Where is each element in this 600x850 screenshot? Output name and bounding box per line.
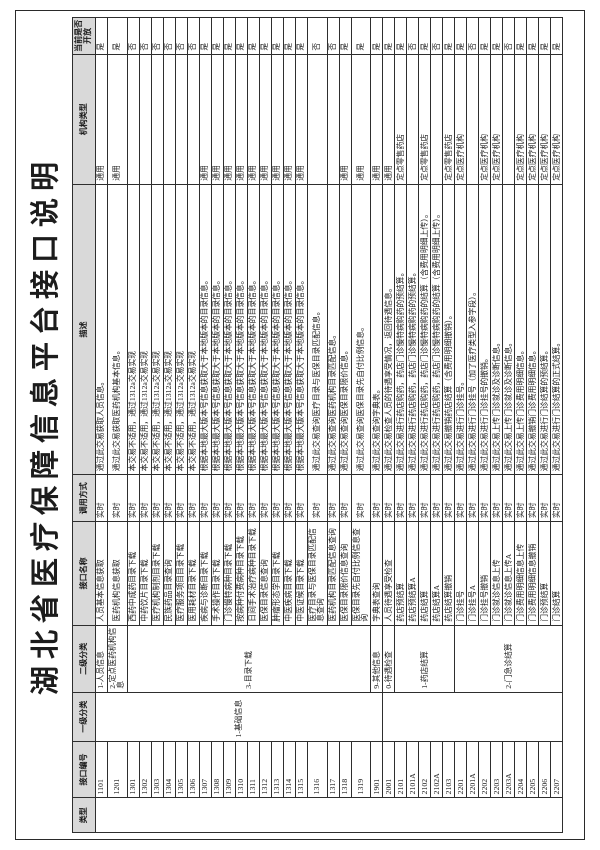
call-mode-cell: 实时	[443, 475, 455, 522]
interface-id-cell: 1316	[307, 741, 327, 798]
header-type: 类型	[73, 798, 96, 833]
level2-category-cell: 1-药店结算	[395, 625, 455, 692]
open-status-cell: 否	[175, 18, 187, 55]
interface-id-cell: 1303	[151, 741, 163, 798]
org-type-cell	[139, 54, 151, 184]
description-cell: 通过此交易进行药店购药，药店门诊慢特病购药的预结算。	[407, 184, 419, 475]
description-cell: 通过此交易进行门诊结算的正式结算。	[551, 184, 563, 475]
interface-name-cell: 中药饮片目录下载	[139, 522, 151, 626]
open-status-cell: 是	[211, 18, 223, 55]
call-mode-cell: 实时	[527, 475, 539, 522]
level2-category-cell: 2-门急诊结算	[455, 625, 563, 692]
interface-id-cell: 1305	[175, 741, 187, 798]
interface-id-cell: 1307	[199, 741, 211, 798]
org-type-cell: 通用	[247, 54, 259, 184]
description-cell: 根据本地最大版本号信息获取大于本地版本的目录信息。	[199, 184, 211, 475]
description-cell: 通过此交易查询医疗目录与医保目录匹配信息。	[307, 184, 327, 475]
interface-name-cell: 门诊预结算	[539, 522, 551, 626]
interface-id-cell: 1201	[108, 741, 128, 798]
call-mode-cell: 实时	[211, 475, 223, 522]
open-status-cell: 是	[259, 18, 271, 55]
org-type-cell: 通用	[371, 54, 383, 184]
org-type-cell	[175, 54, 187, 184]
description-cell: 根据本地最大版本号信息获取大于本地版本的目录信息。	[235, 184, 247, 475]
org-type-cell	[127, 54, 139, 184]
open-status-cell: 否	[307, 18, 327, 55]
description-cell: 本交易不适用，通过1312a交易实现	[175, 184, 187, 475]
open-status-cell: 否	[327, 18, 339, 55]
open-status-cell: 否	[151, 18, 163, 55]
interface-id-cell: 2103	[443, 741, 455, 798]
interface-name-cell: 医保目录信息查询	[259, 522, 271, 626]
open-status-cell: 是	[395, 18, 407, 55]
description-cell: 本交易不适用，通过1312a交易实现	[163, 184, 175, 475]
description-cell: 通过此交易撤销门诊费用明细信息。	[527, 184, 539, 475]
org-type-cell	[187, 54, 199, 184]
interface-id-cell: 1312	[259, 741, 271, 798]
open-status-cell: 是	[383, 18, 395, 55]
open-status-cell: 是	[443, 18, 455, 55]
interface-id-cell: 2201A	[467, 741, 479, 798]
interface-id-cell: 1319	[351, 741, 371, 798]
type-cell	[96, 798, 563, 833]
org-type-cell: 定点医疗机构	[551, 54, 563, 184]
interface-id-cell: 1901	[371, 741, 383, 798]
open-status-cell: 是	[527, 18, 539, 55]
open-status-cell: 是	[515, 18, 527, 55]
table-body: 11011-基础信息1-人员信息人员基本信息获取实时通过此交易获取人员信息。通用…	[96, 18, 563, 833]
open-status-cell: 是	[235, 18, 247, 55]
org-type-cell: 通用	[295, 54, 307, 184]
interface-name-cell: 字典表查询	[371, 522, 383, 626]
interface-id-cell: 2203A	[503, 741, 515, 798]
call-mode-cell: 实时	[467, 475, 479, 522]
org-type-cell: 通用	[96, 54, 108, 184]
interface-name-cell: 疾病与诊断目录下载	[199, 522, 211, 626]
org-type-cell: 通用	[271, 54, 283, 184]
open-status-cell: 否	[187, 18, 199, 55]
interface-name-cell: 药店结算撤销	[443, 522, 455, 626]
interface-name-cell: 人员待遇享受检查	[383, 522, 395, 626]
interface-id-cell: 1306	[187, 741, 199, 798]
interface-id-cell: 2102A	[431, 741, 443, 798]
table-row: 11011-基础信息1-人员信息人员基本信息获取实时通过此交易获取人员信息。通用…	[96, 18, 108, 833]
description-cell: 通过此交易进行门诊挂号（加了医疗类型入参字段）。	[467, 184, 479, 475]
open-status-cell: 否	[407, 18, 419, 55]
open-status-cell: 是	[551, 18, 563, 55]
description-cell: 根据本地最大版本号信息获取大于本地版本的目录信息。	[259, 184, 271, 475]
interface-name-cell: 民族药品目录查询	[163, 522, 175, 626]
org-type-cell: 定点医疗机构	[455, 54, 467, 184]
call-mode-cell: 实时	[175, 475, 187, 522]
call-mode-cell: 实时	[247, 475, 259, 522]
interface-id-cell: 1301	[127, 741, 139, 798]
description-cell: 通过此交易获取医药机构基本信息。	[108, 184, 128, 475]
call-mode-cell: 实时	[407, 475, 419, 522]
org-type-cell	[407, 54, 419, 184]
org-type-cell: 定点零售药店	[443, 54, 455, 184]
org-type-cell	[503, 54, 515, 184]
call-mode-cell: 实时	[96, 475, 108, 522]
org-type-cell: 通用	[211, 54, 223, 184]
interface-name-cell: 按病种付费病种目录下载	[235, 522, 247, 626]
open-status-cell: 是	[108, 18, 128, 55]
interface-name-cell: 医保目录先自付比例信息查询	[351, 522, 371, 626]
call-mode-cell: 实时	[351, 475, 371, 522]
description-cell: 根据本地最大版本号信息获取大于本地版本的目录信息。	[295, 184, 307, 475]
interface-name-cell: 药店预结算	[395, 522, 407, 626]
interface-id-cell: 2206	[539, 741, 551, 798]
org-type-cell	[327, 54, 339, 184]
level1-category-cell: 1-基础信息	[96, 692, 383, 741]
level2-category-cell: 3-目录下载	[127, 625, 371, 692]
call-mode-cell: 实时	[515, 475, 527, 522]
interface-name-cell: 手术操作目录下载	[211, 522, 223, 626]
description-cell: 通过此交易进行药店购药，药店门诊慢特病购药的结算（含费用明细上传）。	[431, 184, 443, 475]
org-type-cell	[151, 54, 163, 184]
org-type-cell: 通用	[383, 54, 395, 184]
description-cell: 通过此交易进行门诊结算的预结算。	[539, 184, 551, 475]
org-type-cell: 通用	[351, 54, 371, 184]
interface-id-cell: 1314	[283, 741, 295, 798]
description-cell: 通过此交易进行门诊挂号的撤销。	[479, 184, 491, 475]
call-mode-cell: 实时	[539, 475, 551, 522]
description-cell: 根据本地最大版本号信息获取大于本地版本的目录信息。	[211, 184, 223, 475]
interface-id-cell: 2205	[527, 741, 539, 798]
call-mode-cell: 实时	[235, 475, 247, 522]
open-status-cell: 是	[539, 18, 551, 55]
call-mode-cell: 实时	[127, 475, 139, 522]
interface-name-cell: 医药机构信息获取	[108, 522, 128, 626]
rotated-document-sheet: 湖北省医疗保障信息平台接口说明 类型 接口编号 一级分类 二级分类 接口名称 调…	[15, 10, 585, 840]
interface-name-cell: 门诊慢特病种目录下载	[223, 522, 235, 626]
org-type-cell: 定点医疗机构	[515, 54, 527, 184]
call-mode-cell: 实时	[271, 475, 283, 522]
interface-id-cell: 1311	[247, 741, 259, 798]
description-cell: 通过此交易查询字典表。	[371, 184, 383, 475]
header-call-mode: 调用方式	[73, 475, 96, 522]
call-mode-cell: 实时	[371, 475, 383, 522]
call-mode-cell: 实时	[199, 475, 211, 522]
org-type-cell: 定点零售药店	[395, 54, 407, 184]
table-header-row: 类型 接口编号 一级分类 二级分类 接口名称 调用方式 描述 机构类型 当前是否…	[73, 18, 96, 833]
header-description: 描述	[73, 184, 96, 475]
interface-name-cell: 医药机构目录匹配信息查询	[327, 522, 339, 626]
description-cell: 根据本地最大版本号信息获取大于本地版本的目录信息。	[271, 184, 283, 475]
interface-name-cell: 门诊就诊信息上传	[491, 522, 503, 626]
open-status-cell: 是	[479, 18, 491, 55]
description-cell: 通过此交易检查人员的待遇享受情况，返回待遇信息。	[383, 184, 395, 475]
open-status-cell: 否	[139, 18, 151, 55]
page-title: 湖北省医疗保障信息平台接口说明	[24, 17, 70, 833]
interface-name-cell: 药店结算	[419, 522, 431, 626]
call-mode-cell: 实时	[223, 475, 235, 522]
interface-id-cell: 1304	[163, 741, 175, 798]
interface-id-cell: 1317	[327, 741, 339, 798]
description-cell: 通过此交易上传门诊就诊及诊断信息。	[503, 184, 515, 475]
org-type-cell	[467, 54, 479, 184]
org-type-cell: 定点零售药店	[419, 54, 431, 184]
call-mode-cell: 实时	[139, 475, 151, 522]
interface-name-cell: 门诊结算	[551, 522, 563, 626]
interface-id-cell: 2102	[419, 741, 431, 798]
call-mode-cell: 实时	[327, 475, 339, 522]
org-type-cell: 定点医疗机构	[491, 54, 503, 184]
description-cell: 通过此交易进行门诊挂号。	[455, 184, 467, 475]
interface-name-cell: 医疗机构制剂目录下载	[151, 522, 163, 626]
description-cell: 通过此交易获取人员信息。	[96, 184, 108, 475]
interface-name-cell: 门诊挂号撤销	[479, 522, 491, 626]
open-status-cell: 是	[283, 18, 295, 55]
open-status-cell: 是	[295, 18, 307, 55]
description-cell: 通过此交易进行药店购药，药店门诊慢特病购药的结算（含费用明细上传）。	[419, 184, 431, 475]
interface-name-cell: 门诊费用明细信息撤销	[527, 522, 539, 626]
interface-id-cell: 1310	[235, 741, 247, 798]
interface-id-cell: 1315	[295, 741, 307, 798]
interface-id-cell: 1302	[139, 741, 151, 798]
description-cell: 通过此交易查询医药机构目录匹配信息。	[327, 184, 339, 475]
interface-id-cell: 2202	[479, 741, 491, 798]
interface-name-cell: 药店预结算A	[407, 522, 419, 626]
description-cell: 通过此交易上传门诊费用明细信息。	[515, 184, 527, 475]
call-mode-cell: 实时	[431, 475, 443, 522]
call-mode-cell: 实时	[383, 475, 395, 522]
org-type-cell: 通用	[235, 54, 247, 184]
table-row: 20010-待遇检查人员待遇享受检查实时通过此交易检查人员的待遇享受情况，返回待…	[383, 18, 395, 833]
interface-id-cell: 2101A	[407, 741, 419, 798]
interface-id-cell: 2207	[551, 741, 563, 798]
header-org-type: 机构类型	[73, 54, 96, 184]
open-status-cell: 是	[419, 18, 431, 55]
interface-name-cell: 医疗目录与医保目录匹配信息查询	[307, 522, 327, 626]
description-cell: 本交易不适用，通过1312a交易实现	[151, 184, 163, 475]
call-mode-cell: 实时	[491, 475, 503, 522]
interface-name-cell: 门诊费用明细信息上传	[515, 522, 527, 626]
interface-id-cell: 2204	[515, 741, 527, 798]
org-type-cell: 通用	[108, 54, 128, 184]
level2-category-cell: 0-待遇检查	[383, 625, 395, 692]
call-mode-cell: 实时	[108, 475, 128, 522]
interface-id-cell: 1101	[96, 741, 108, 798]
interface-name-cell: 人员基本信息获取	[96, 522, 108, 626]
header-level1-category: 一级分类	[73, 692, 96, 741]
org-type-cell	[163, 54, 175, 184]
open-status-cell: 是	[491, 18, 503, 55]
description-cell: 本交易不适用，通过1312a交易实现	[187, 184, 199, 475]
call-mode-cell: 实时	[419, 475, 431, 522]
interface-id-cell: 2203	[491, 741, 503, 798]
open-status-cell: 否	[127, 18, 139, 55]
open-status-cell: 是	[247, 18, 259, 55]
call-mode-cell: 实时	[259, 475, 271, 522]
interface-table: 类型 接口编号 一级分类 二级分类 接口名称 调用方式 描述 机构类型 当前是否…	[72, 17, 563, 833]
open-status-cell: 否	[467, 18, 479, 55]
org-type-cell: 定点医疗机构	[527, 54, 539, 184]
call-mode-cell: 实时	[395, 475, 407, 522]
open-status-cell: 是	[271, 18, 283, 55]
org-type-cell	[431, 54, 443, 184]
interface-name-cell: 门诊就诊信息上传A	[503, 522, 515, 626]
interface-id-cell: 1308	[211, 741, 223, 798]
interface-name-cell: 医保目录限价信息查询	[339, 522, 351, 626]
call-mode-cell: 实时	[283, 475, 295, 522]
level1-category-cell	[383, 692, 563, 741]
interface-name-cell: 医用耗材目录下载	[187, 522, 199, 626]
scanned-page: { "title": "湖北省医疗保障信息平台接口说明", "table": {…	[0, 0, 600, 850]
open-status-cell: 是	[351, 18, 371, 55]
interface-name-cell: 门诊挂号	[455, 522, 467, 626]
description-cell: 通过此交易上传门诊就诊及诊断信息。	[491, 184, 503, 475]
level2-category-cell: 2-定点医药机构信息	[108, 625, 128, 692]
call-mode-cell: 实时	[455, 475, 467, 522]
open-status-cell: 是	[199, 18, 211, 55]
interface-name-cell: 门诊挂号A	[467, 522, 479, 626]
description-cell: 本交易不适用，通过1312a交易实现	[139, 184, 151, 475]
call-mode-cell: 实时	[551, 475, 563, 522]
org-type-cell: 定点医疗机构	[479, 54, 491, 184]
open-status-cell: 是	[455, 18, 467, 55]
call-mode-cell: 实时	[151, 475, 163, 522]
description-cell: 本交易不适用，通过1312a交易实现	[127, 184, 139, 475]
open-status-cell: 否	[431, 18, 443, 55]
open-status-cell: 否	[503, 18, 515, 55]
interface-name-cell: 医疗服务项目目录下载	[175, 522, 187, 626]
open-status-cell: 否	[163, 18, 175, 55]
description-cell: 通过此交易进行药店购药，药店门诊慢特病购药的预结算。	[395, 184, 407, 475]
description-cell: 根据本地最大版本号信息获取大于本地版本的目录信息。	[247, 184, 259, 475]
level2-category-cell: 9-其他信息	[371, 625, 383, 692]
org-type-cell: 通用	[223, 54, 235, 184]
call-mode-cell: 实时	[479, 475, 491, 522]
open-status-cell: 是	[339, 18, 351, 55]
header-interface-name: 接口名称	[73, 522, 96, 626]
header-level2-category: 二级分类	[73, 625, 96, 692]
call-mode-cell: 实时	[187, 475, 199, 522]
org-type-cell: 通用	[199, 54, 211, 184]
interface-name-cell: 肿瘤形态学目录下载	[271, 522, 283, 626]
description-cell: 根据本地最大版本号信息获取大于本地版本的目录信息。	[223, 184, 235, 475]
header-open-status: 当前是否开放	[73, 18, 96, 55]
interface-id-cell: 1313	[271, 741, 283, 798]
call-mode-cell: 实时	[295, 475, 307, 522]
interface-name-cell: 西药中成药目录下载	[127, 522, 139, 626]
call-mode-cell: 实时	[163, 475, 175, 522]
call-mode-cell: 实时	[307, 475, 327, 522]
interface-name-cell: 药店结算A	[431, 522, 443, 626]
open-status-cell: 是	[223, 18, 235, 55]
open-status-cell: 是	[96, 18, 108, 55]
org-type-cell: 通用	[259, 54, 271, 184]
interface-name-cell: 日间手术治疗病种目录下载	[247, 522, 259, 626]
interface-id-cell: 2001	[383, 741, 395, 798]
interface-name-cell: 中医疾病目录下载	[283, 522, 295, 626]
description-cell: 通过此交易查询医保目录先自付比例信息。	[351, 184, 371, 475]
org-type-cell: 通用	[283, 54, 295, 184]
level2-category-cell: 1-人员信息	[96, 625, 108, 692]
interface-id-cell: 1309	[223, 741, 235, 798]
interface-id-cell: 1318	[339, 741, 351, 798]
org-type-cell: 定点医疗机构	[539, 54, 551, 184]
call-mode-cell: 实时	[339, 475, 351, 522]
description-cell: 通过此交易查询医保目录限价信息。	[339, 184, 351, 475]
org-type-cell: 通用	[339, 54, 351, 184]
interface-id-cell: 2101	[395, 741, 407, 798]
header-interface-id: 接口编号	[73, 741, 96, 798]
open-status-cell: 是	[371, 18, 383, 55]
interface-id-cell: 2201	[455, 741, 467, 798]
interface-name-cell: 中医证候目录下载	[295, 522, 307, 626]
description-cell: 通过此交易撤销药店结算（含费用明细撤销）。	[443, 184, 455, 475]
org-type-cell	[307, 54, 327, 184]
description-cell: 根据本地最大版本号信息获取大于本地版本的目录信息。	[283, 184, 295, 475]
call-mode-cell: 实时	[503, 475, 515, 522]
